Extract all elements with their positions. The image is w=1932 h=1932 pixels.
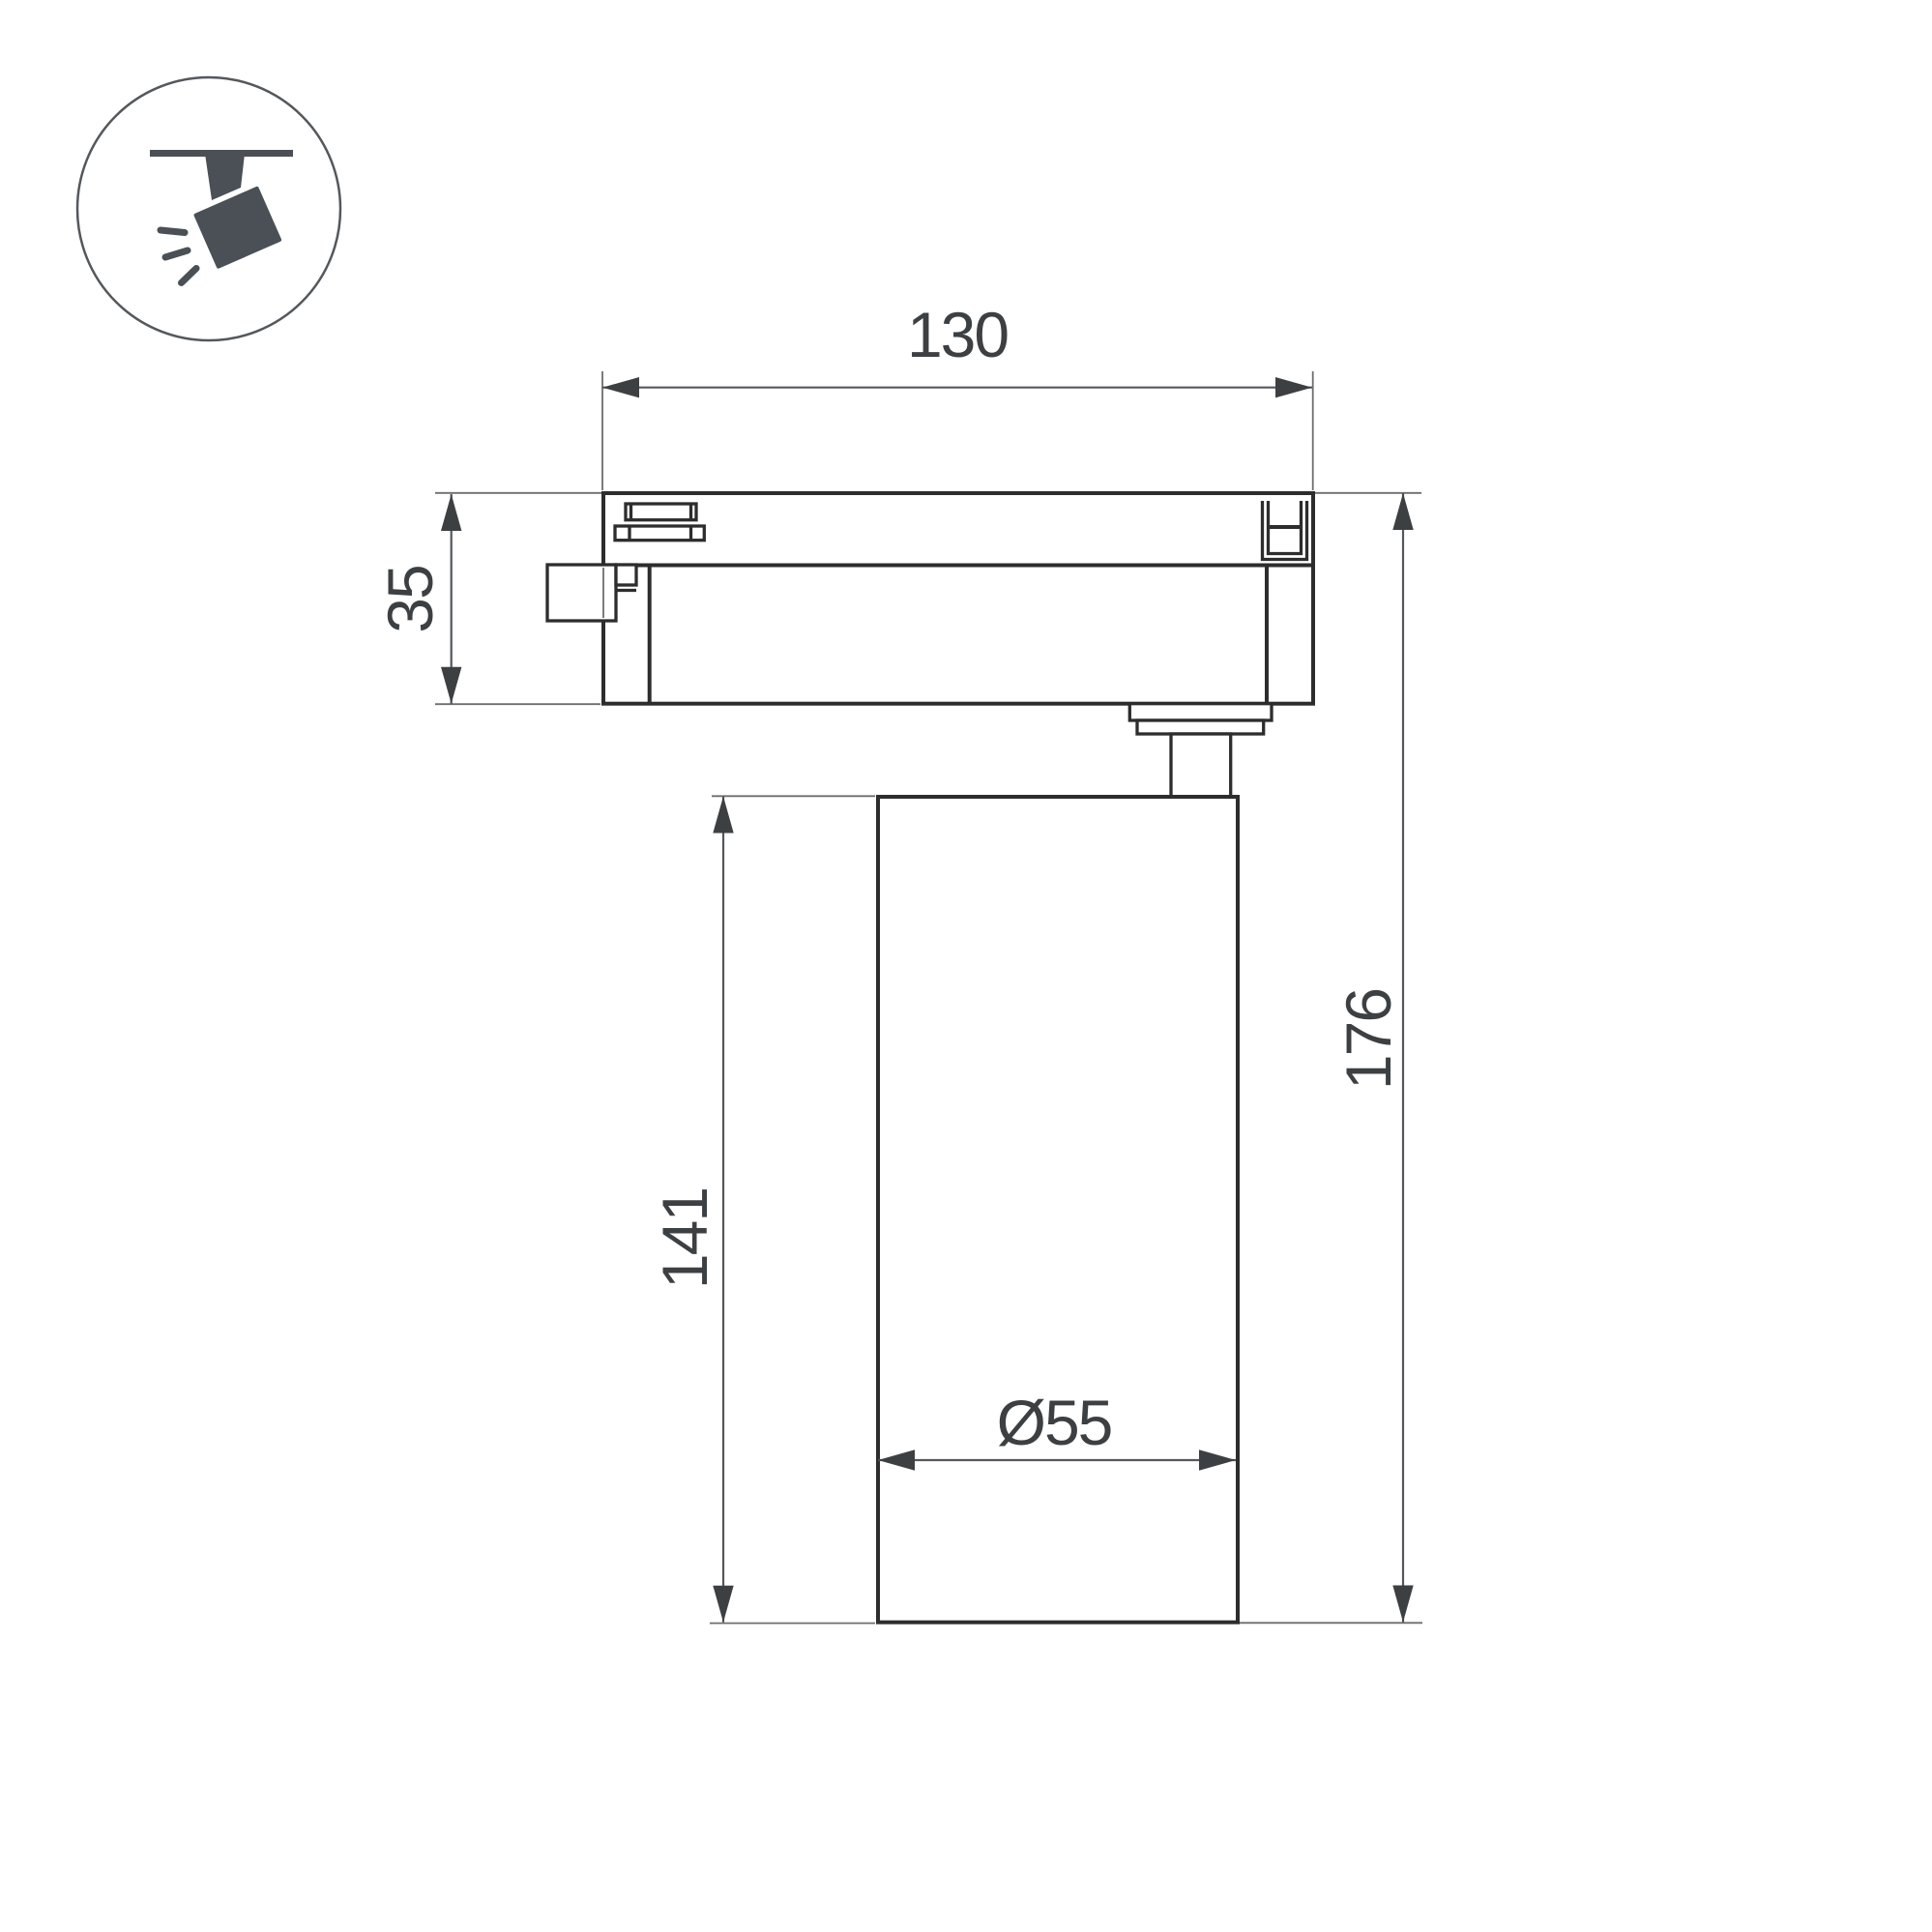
track-adapter (547, 493, 1313, 704)
drawing-canvas: 130 35 141 176 Ø55 (0, 0, 1932, 1932)
dimension-label-diameter: Ø55 (997, 1387, 1112, 1458)
dimension-label-body-height: 141 (649, 1188, 720, 1289)
icon-light-ray-1 (161, 230, 185, 233)
mount-neck (1171, 734, 1231, 798)
technical-drawing-page: 130 35 141 176 Ø55 (0, 0, 1932, 1932)
mount-flange-upper (1129, 704, 1272, 720)
track-spotlight-icon (77, 77, 340, 340)
lamp-body-outline (878, 797, 1238, 1623)
mount-flange-lower (1137, 720, 1264, 734)
dimension-label-width: 130 (907, 299, 1008, 370)
adapter-outline (603, 493, 1313, 704)
dimension-label-total-height: 176 (1332, 989, 1404, 1090)
dimension-label-adapter-height: 35 (374, 566, 446, 632)
